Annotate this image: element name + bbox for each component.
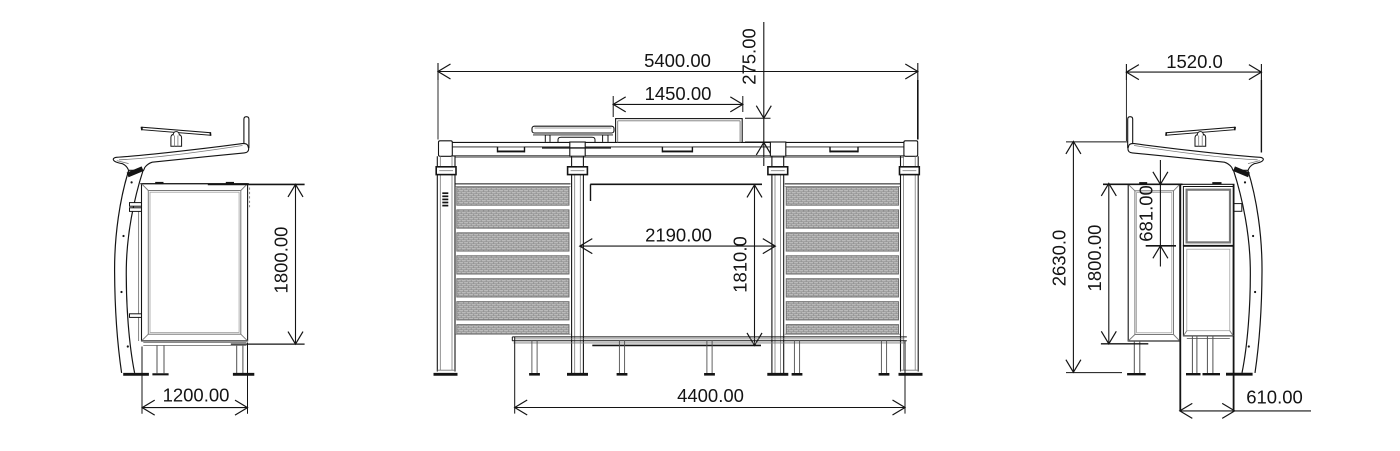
svg-text:2190.00: 2190.00	[645, 224, 712, 245]
svg-text:1810.0: 1810.0	[730, 236, 751, 293]
svg-text:1450.00: 1450.00	[645, 83, 712, 104]
svg-text:1800.00: 1800.00	[271, 227, 292, 294]
svg-text:681.00: 681.00	[1136, 185, 1157, 242]
svg-text:610.00: 610.00	[1246, 387, 1303, 408]
svg-text:4400.00: 4400.00	[677, 385, 744, 406]
svg-text:2630.0: 2630.0	[1049, 230, 1070, 287]
svg-text:1800.00: 1800.00	[1084, 225, 1105, 292]
svg-text:5400.00: 5400.00	[644, 50, 711, 71]
svg-text:1200.00: 1200.00	[163, 385, 230, 406]
svg-text:1520.0: 1520.0	[1166, 51, 1223, 72]
svg-text:275.00: 275.00	[739, 28, 760, 85]
